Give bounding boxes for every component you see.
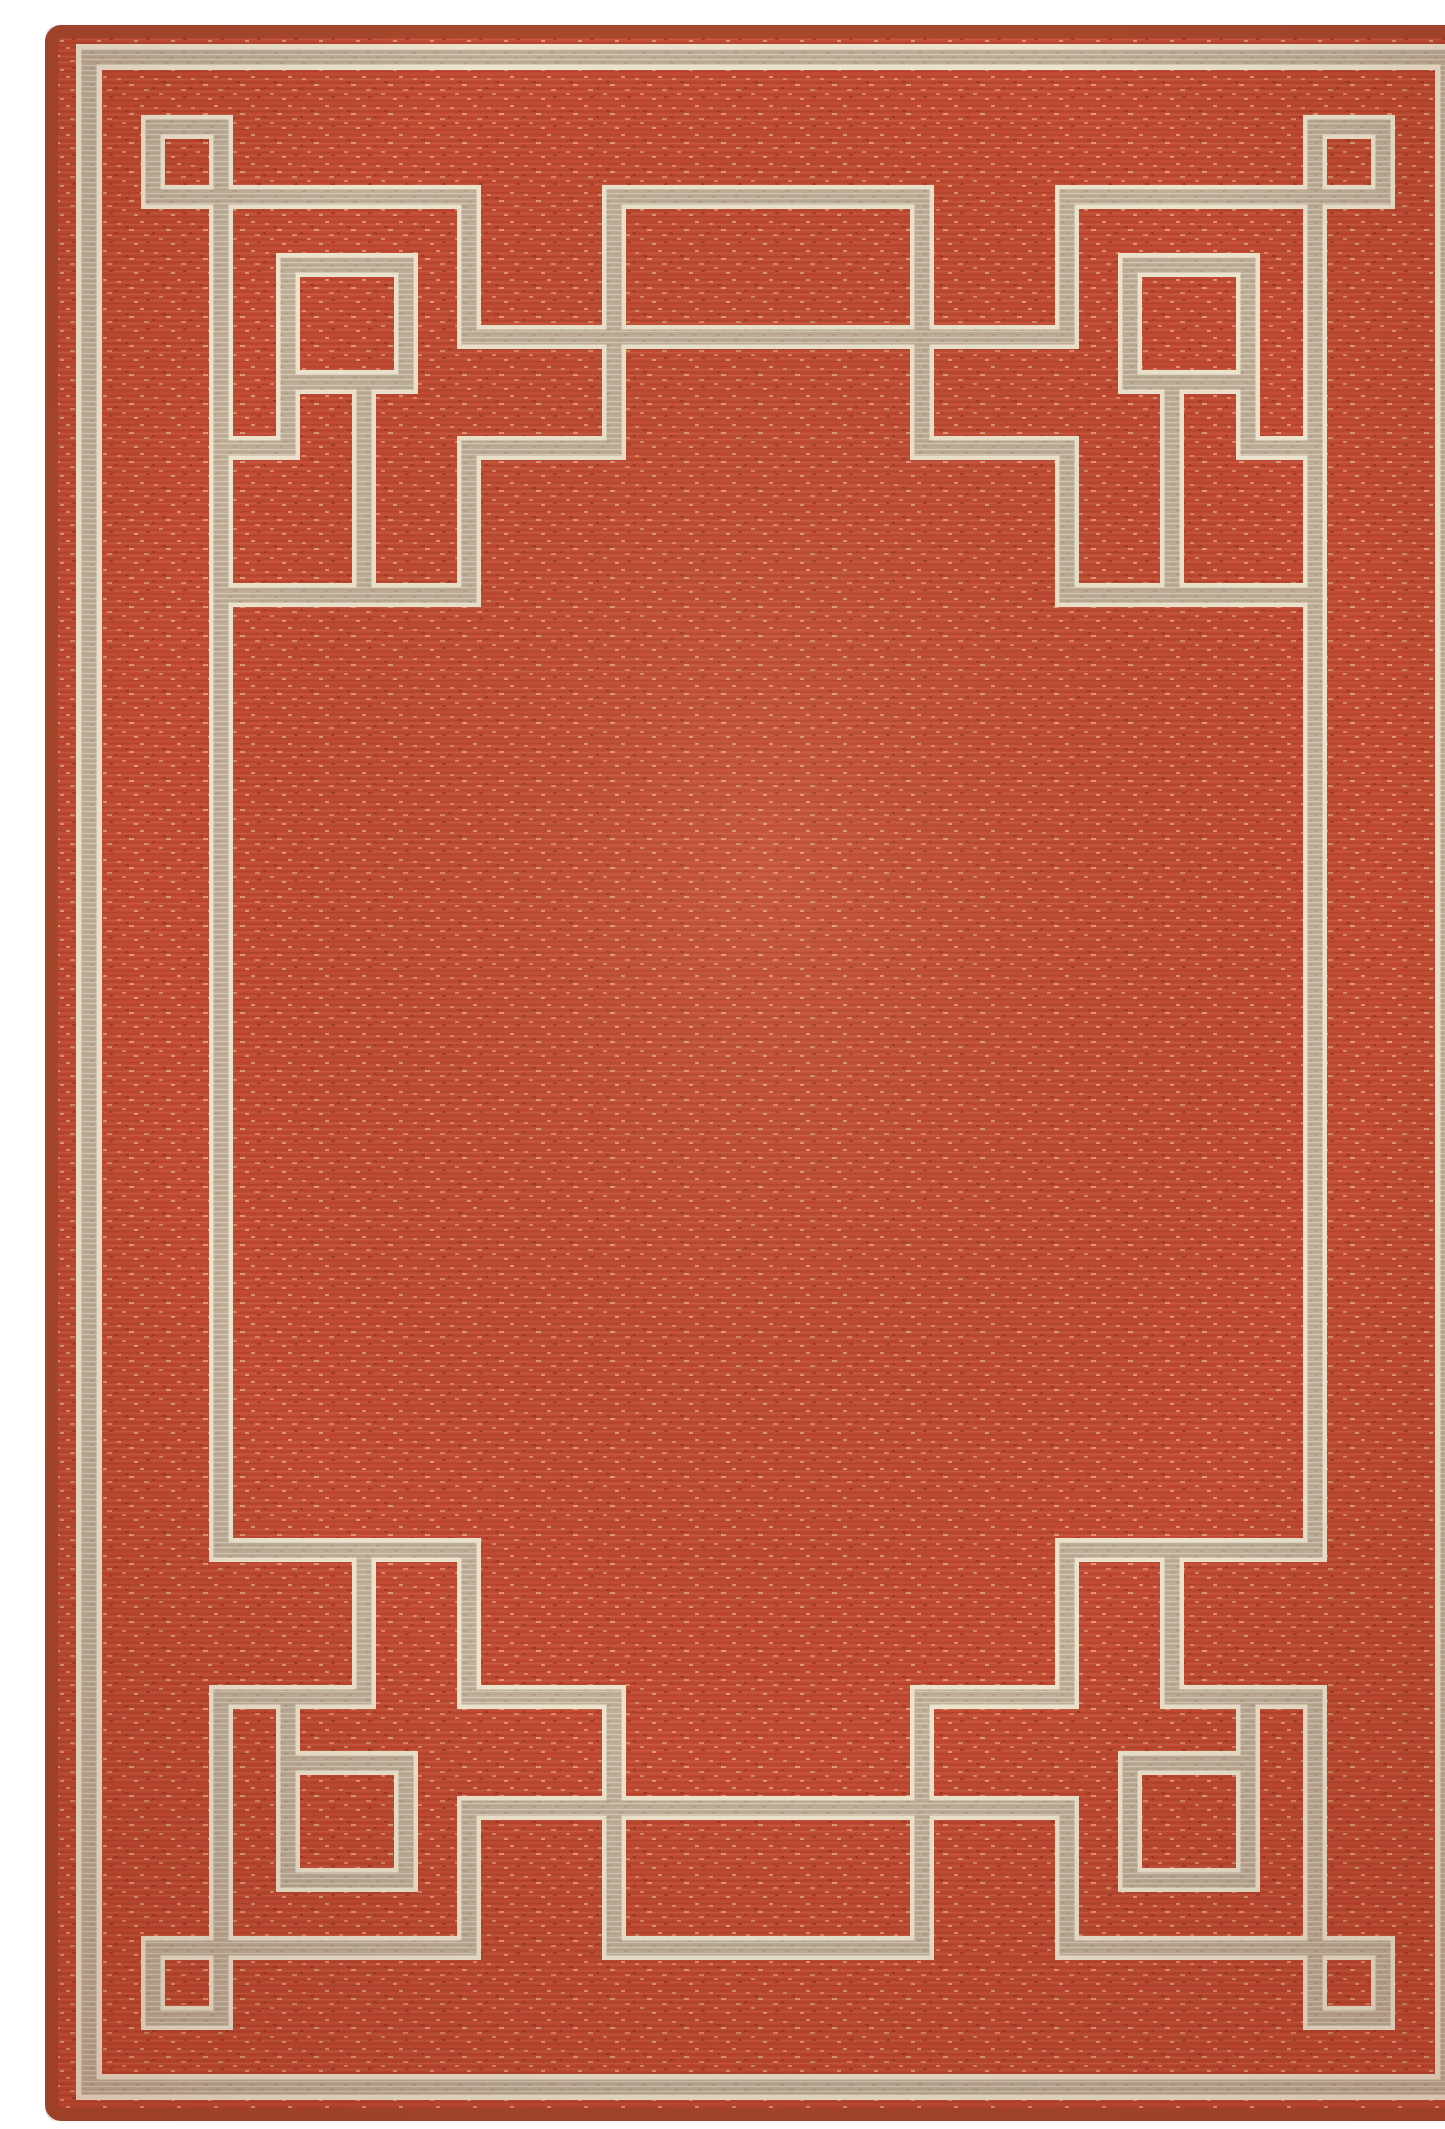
rug-photo-canvas [40,16,1445,2129]
photo-vignette [45,25,1445,2121]
rug-product-photo [40,16,1405,2097]
